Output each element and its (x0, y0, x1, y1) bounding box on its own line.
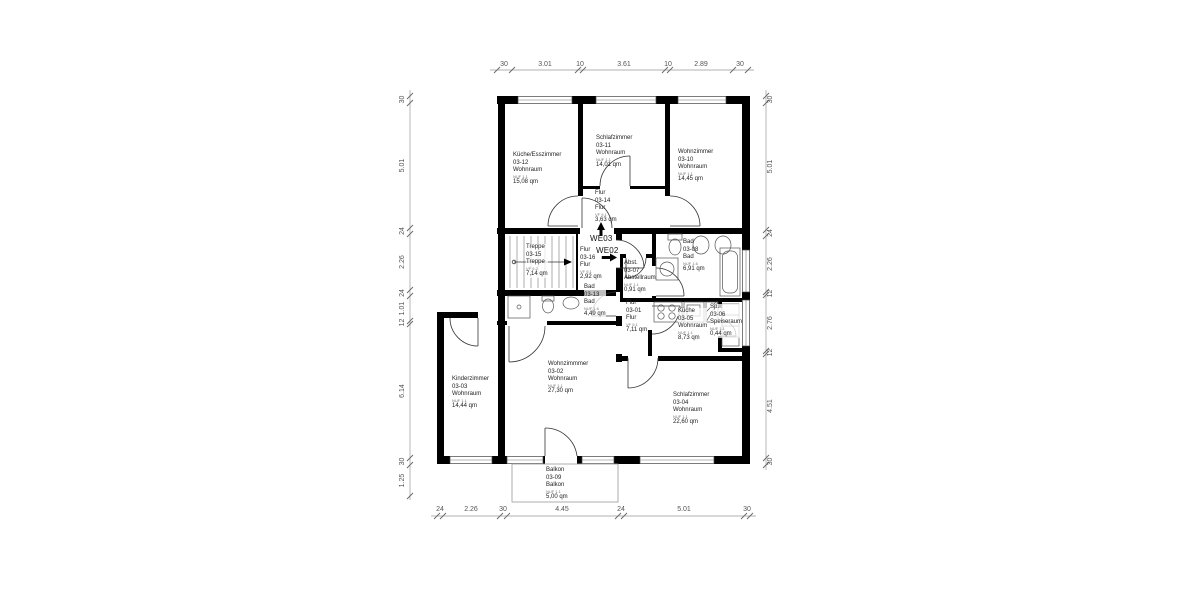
room-area: 14,01 qm (596, 162, 632, 170)
room-name: Abst. (624, 260, 656, 268)
svg-text:5.01: 5.01 (677, 506, 691, 513)
room-number: 03-01 (626, 308, 647, 316)
room-number: 03-10 (678, 157, 713, 165)
svg-text:12: 12 (767, 349, 774, 357)
svg-text:30: 30 (499, 506, 507, 513)
room-label-wohnzimmer-03-10: Wohnzimmer 03-10 Wohnraum NUF 1.1 14,45 … (678, 149, 713, 183)
room-label-kueche-esszimmer-03-12: Küche/Esszimmer 03-12 Wohnraum NUF 1.1 1… (513, 152, 561, 186)
room-name: Schlafzimmer (673, 392, 709, 400)
svg-text:5.01: 5.01 (767, 160, 774, 174)
svg-text:24: 24 (617, 506, 625, 513)
room-number: 03-11 (596, 143, 632, 151)
room-label-schlafzimmer-03-11: Schlafzimmer 03-11 Wohnraum NUF 1.1 14,0… (596, 135, 632, 169)
room-label-balkon-03-09: Balkon 03-09 Balkon NUF 1.1 5,00 qm (546, 467, 568, 501)
room-label-wohnzimmer-03-02: Wohnzimmmer 03-02 Wohnraum NUF 1.1 27,30… (548, 361, 588, 395)
we03-label: WE03 (590, 234, 613, 243)
washbasin-icon (563, 297, 579, 309)
room-area: 2,92 qm (580, 274, 602, 282)
room-area: 15,08 qm (513, 179, 561, 187)
room-name: Küche (678, 308, 707, 316)
toilet-tank-icon (542, 296, 554, 301)
room-name: Wohnzimmmer (548, 361, 588, 369)
svg-text:30: 30 (767, 96, 774, 104)
toilet-icon (669, 239, 681, 255)
room-label-kinderzimmer-03-03: Kinderzimmer 03-03 Wohnraum NUF 1.1 14,4… (452, 376, 489, 410)
room-number: 03-04 (673, 400, 709, 408)
room-name: Flur (626, 300, 647, 308)
svg-text:24: 24 (436, 506, 444, 513)
room-number: 03-06 (710, 312, 742, 320)
svg-text:10: 10 (664, 61, 672, 68)
room-area: 4,49 qm (584, 311, 606, 319)
room-number: 03-07 (624, 268, 656, 276)
svg-text:30: 30 (743, 506, 751, 513)
room-name: Schlafzimmer (596, 135, 632, 143)
room-area: 7,11 qm (626, 327, 647, 335)
room-area: 3,63 qm (595, 217, 617, 225)
room-name: Balkon (546, 467, 568, 475)
svg-text:2.26: 2.26 (464, 506, 478, 513)
room-area: 8,73 qm (678, 335, 707, 343)
room-label-treppe-03-15: Treppe 03-15 Treppe VF 9.2 7,14 qm (526, 244, 548, 278)
room-area: 5,00 qm (546, 494, 568, 502)
room-label-flur-03-14: Flur 03-14 Flur VF 9.1 3,63 qm (595, 190, 617, 224)
room-name: Bad (683, 239, 705, 247)
svg-text:24: 24 (399, 289, 406, 297)
svg-text:3.01: 3.01 (538, 61, 552, 68)
room-area: 27,30 qm (548, 388, 588, 396)
floor-plan-canvas: 30 3.01 10 3.61 10 2.89 30 24 2.26 30 4.… (0, 0, 1200, 600)
svg-text:1.25: 1.25 (399, 474, 406, 488)
svg-text:1.01: 1.01 (399, 302, 406, 316)
room-number: 03-14 (595, 198, 617, 206)
room-label-flur-03-01: Flur 03-01 Flur VF 9.1 7,11 qm (626, 300, 647, 334)
room-area: 14,44 qm (452, 403, 489, 411)
room-number: 03-15 (526, 252, 548, 260)
shower-icon (508, 296, 530, 318)
svg-text:6.14: 6.14 (399, 384, 406, 398)
room-number: 03-09 (546, 475, 568, 483)
svg-text:3.61: 3.61 (617, 61, 631, 68)
svg-text:2.26: 2.26 (399, 255, 406, 269)
room-label-bad-03-08: Bad 03-08 Bad NUF 1.6 6,91 qm (683, 239, 705, 273)
room-number: 03-08 (683, 247, 705, 255)
svg-text:30: 30 (736, 61, 744, 68)
svg-text:2.76: 2.76 (767, 316, 774, 330)
room-area: 22,60 qm (673, 419, 709, 427)
svg-text:12: 12 (399, 319, 406, 327)
we02-label: WE02 (596, 246, 619, 255)
room-label-speiseraum-03-06: Sp. 03-06 Speiseraum NUF 1.1 0,44 qm (710, 304, 742, 338)
room-number: 03-13 (584, 292, 606, 300)
room-label-kueche-03-05: Küche 03-05 Wohnraum NUF 1.1 8,73 qm (678, 308, 707, 342)
svg-text:10: 10 (576, 61, 584, 68)
svg-text:12: 12 (767, 290, 774, 298)
room-area: 0,44 qm (710, 331, 742, 339)
room-area: 14,45 qm (678, 176, 713, 184)
room-area: 7,14 qm (526, 271, 548, 279)
room-label-abstellraum-03-07: Abst. 03-07 Abstellraum NUF 1.1 0,91 qm (624, 260, 656, 294)
room-name: Küche/Esszimmer (513, 152, 561, 160)
room-name: Wohnzimmer (678, 149, 713, 157)
svg-text:4.51: 4.51 (767, 399, 774, 413)
room-number: 03-03 (452, 384, 489, 392)
room-name: Treppe (526, 244, 548, 252)
svg-text:30: 30 (399, 96, 406, 104)
room-area: 6,91 qm (683, 266, 705, 274)
svg-text:4.45: 4.45 (555, 506, 569, 513)
svg-text:2.26: 2.26 (767, 257, 774, 271)
svg-text:30: 30 (500, 61, 508, 68)
svg-text:5.01: 5.01 (399, 159, 406, 173)
we02-right-arrow-icon (601, 256, 610, 259)
room-label-bad-03-13: Bad 03-13 Bad NUF 1.6 4,49 qm (584, 284, 606, 318)
room-number: 03-05 (678, 316, 707, 324)
svg-text:30: 30 (767, 458, 774, 466)
room-name: Bad (584, 284, 606, 292)
room-number: 03-02 (548, 369, 588, 377)
room-name: Sp. (710, 304, 742, 312)
room-name: Kinderzimmer (452, 376, 489, 384)
room-number: 03-16 (580, 255, 602, 263)
svg-text:30: 30 (399, 458, 406, 466)
room-name: Flur (595, 190, 617, 198)
svg-text:2.89: 2.89 (694, 61, 708, 68)
svg-text:24: 24 (399, 227, 406, 235)
room-label-schlafzimmer-03-04: Schlafzimmer 03-04 Wohnraum NUF 1.1 22,6… (673, 392, 709, 426)
room-number: 03-12 (513, 160, 561, 168)
room-area: 0,91 qm (624, 287, 656, 295)
stair-direction-arrow (564, 259, 572, 266)
washing-machine-icon (656, 258, 678, 280)
svg-text:24: 24 (767, 229, 774, 237)
